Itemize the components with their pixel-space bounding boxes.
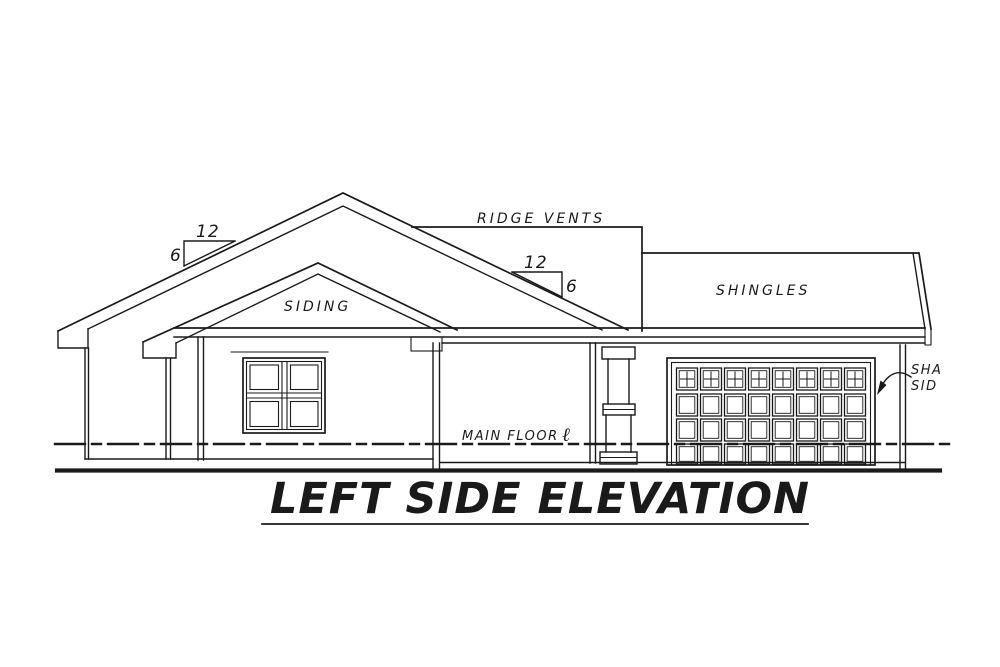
garage-door-panel — [725, 394, 746, 416]
elevation-drawing-sheet: 12 6 12 6 RIDGE VENTS SIDING SHINGLES MA… — [0, 0, 1000, 667]
garage-door-panel — [727, 422, 743, 439]
fascia-right-end-cap — [925, 328, 931, 345]
garage-door-panel — [848, 372, 862, 387]
garage-door-panel — [775, 422, 791, 439]
garage-door-panel — [728, 372, 742, 387]
window-pane — [250, 402, 279, 427]
window-mullions — [247, 362, 322, 430]
label-shingles: SHINGLES — [716, 283, 810, 299]
garage-door-panel — [679, 397, 695, 414]
garage-door-panel — [751, 397, 767, 414]
slope-marker-left: 12 6 — [170, 222, 235, 266]
garage-door-panel — [680, 372, 694, 387]
shake-siding-note: SHA SID — [877, 363, 942, 395]
garage-door-panel — [752, 372, 766, 387]
garage-door-panel — [847, 422, 863, 439]
garage-door-panel — [824, 372, 838, 387]
garage-door-panel — [679, 422, 695, 439]
garage-door-panel — [821, 419, 842, 441]
garage-door-panel — [799, 447, 815, 462]
elevation-drawing: 12 6 12 6 RIDGE VENTS SIDING SHINGLES MA… — [0, 0, 1000, 667]
rear-gable-left-eave-box — [143, 342, 176, 358]
garage-door-panel — [704, 372, 718, 387]
garage-door-panel — [823, 422, 839, 439]
garage-door-panel — [703, 422, 719, 439]
garage-door-inner-frame — [672, 363, 871, 466]
gable-wall-left-corner — [198, 337, 204, 460]
garage-door-panel — [821, 394, 842, 416]
porch-wall-left-corner — [433, 343, 440, 468]
eave-fascia-band — [174, 328, 931, 351]
garage-door-panel — [799, 397, 815, 414]
garage-door-panel — [679, 447, 695, 462]
main-floor-level-symbol: ℓ — [562, 424, 570, 446]
porch-column — [600, 347, 637, 464]
label-siding: SIDING — [284, 299, 351, 315]
garage-door-panel — [797, 394, 818, 416]
garage-door-panel — [845, 394, 866, 416]
garage-door-panel — [677, 394, 698, 416]
garage-door-panel — [751, 422, 767, 439]
garage-roof-hip-edge — [913, 253, 925, 329]
garage-door — [667, 358, 875, 465]
left-wing-wall — [85, 348, 89, 459]
garage-door-panel — [751, 447, 767, 462]
garage-door-panel — [847, 397, 863, 414]
garage-door-outer-frame — [667, 358, 875, 465]
garage-door-panel — [703, 447, 719, 462]
window-pane — [250, 365, 279, 390]
slope-triangle — [512, 272, 562, 297]
garage-door-panel — [773, 394, 794, 416]
window-pane — [291, 365, 319, 390]
garage-door-panel — [775, 447, 791, 462]
garage-door-panel — [725, 419, 746, 441]
garage-door-panel — [703, 397, 719, 414]
label-main-floor: MAIN FLOOR — [462, 429, 559, 444]
window-outer-frame — [243, 358, 325, 433]
label-shake-siding-line1: SHA — [911, 363, 942, 378]
garage-door-panel — [823, 397, 839, 414]
main-gable-left-eave-box — [58, 329, 88, 348]
window-inner-frame — [247, 362, 322, 430]
garage-door-panel — [799, 422, 815, 439]
slope-right-run: 12 — [524, 253, 548, 273]
garage-door-panel — [727, 447, 743, 462]
garage-door-panel — [845, 419, 866, 441]
garage-door-panel — [749, 419, 770, 441]
gable-window — [231, 352, 328, 433]
garage-door-panel — [701, 394, 722, 416]
rear-roof-outline — [412, 227, 931, 331]
label-shake-siding-line2: SID — [911, 379, 938, 394]
garage-door-panel — [775, 397, 791, 414]
label-ridge-vents: RIDGE VENTS — [477, 211, 605, 227]
leader-arrowhead — [877, 381, 887, 396]
garage-door-panel — [749, 394, 770, 416]
column-shaft — [608, 359, 629, 404]
garage-door-panel — [800, 372, 814, 387]
garage-door-panel — [823, 447, 839, 462]
window-pane — [291, 402, 319, 427]
slope-right-rise: 6 — [566, 277, 578, 297]
garage-door-panel — [773, 419, 794, 441]
column-pedestal — [606, 415, 631, 452]
garage-door-panel — [797, 419, 818, 441]
garage-door-panel-grid — [677, 368, 866, 464]
slope-left-run: 12 — [196, 222, 220, 242]
garage-door-panel — [776, 372, 790, 387]
garage-right-wall — [900, 345, 906, 468]
walls — [85, 337, 906, 468]
column-capital — [602, 347, 635, 359]
garage-door-panel — [677, 419, 698, 441]
slope-left-rise: 6 — [170, 246, 182, 266]
garage-door-panel — [727, 397, 743, 414]
garage-door-panel — [701, 419, 722, 441]
garage-door-panel — [847, 447, 863, 462]
porch-beam-end-block — [411, 337, 442, 351]
drawing-title: LEFT SIDE ELEVATION — [270, 474, 810, 524]
